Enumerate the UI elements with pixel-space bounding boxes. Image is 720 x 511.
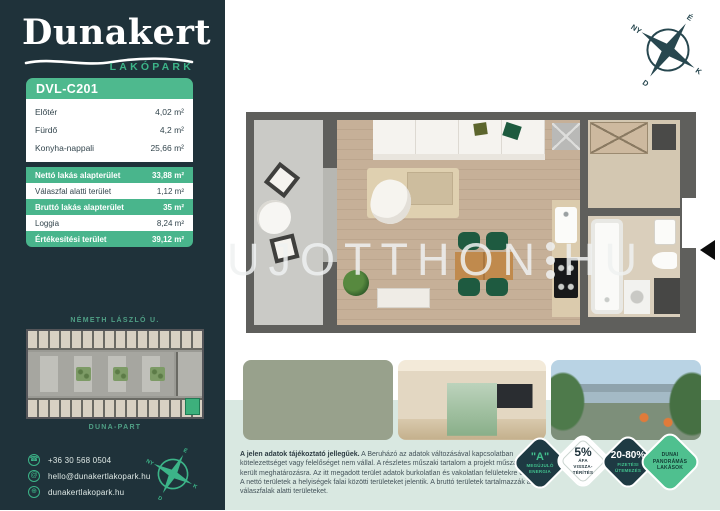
summary-table: Nettó lakás alapterület 33,88 m² Válaszf… xyxy=(26,167,193,247)
table-row: Nettó lakás alapterület 33,88 m² xyxy=(26,167,193,183)
table-row: Bruttó lakás alapterület 35 m² xyxy=(26,199,193,215)
unit-id-header: DVL-C201 xyxy=(26,78,193,99)
badge-value: 20-80% xyxy=(611,450,645,462)
table-row: Értékesítési terület 39,12 m² xyxy=(26,231,193,247)
svg-text:É: É xyxy=(182,446,189,455)
siteplan-highlighted-unit xyxy=(185,398,200,415)
table-row: Fürdő 4,2 m² xyxy=(26,121,193,139)
email-address[interactable]: hello@dunakertlakopark.hu xyxy=(48,472,151,481)
photo-terrace-view xyxy=(551,360,701,440)
siteplan-garden xyxy=(113,367,128,381)
entrance-arrow-icon xyxy=(700,240,715,260)
room-label: Fürdő xyxy=(35,125,57,135)
room-label: Konyha-nappali xyxy=(35,143,94,153)
badge-value: 5% xyxy=(574,446,591,458)
summary-area: 1,12 m² xyxy=(157,187,184,196)
phone-icon: ☎ xyxy=(28,454,40,466)
contact-email-row: @ hello@dunakertlakopark.hu xyxy=(28,468,151,484)
toilet xyxy=(652,252,677,269)
summary-area: 33,88 m² xyxy=(152,171,184,180)
siteplan-units-north xyxy=(28,331,202,350)
siteplan-overview xyxy=(26,329,204,419)
coffee-table xyxy=(407,172,453,205)
summary-area: 8,24 m² xyxy=(157,219,184,228)
siteplan-garden xyxy=(76,367,91,381)
summary-label: Bruttó lakás alapterület xyxy=(35,203,124,212)
watermark-dots-icon xyxy=(546,242,555,279)
bathroom-mat xyxy=(654,278,680,314)
globe-icon: ⊕ xyxy=(28,486,40,498)
table-row: Válaszfal alatti terület 1,12 m² xyxy=(26,183,193,199)
summary-area: 39,12 m² xyxy=(152,235,184,244)
siteplan-courtyard xyxy=(28,352,174,396)
badge-label: DUNAI PANORÁMÁS LAKÁSOK xyxy=(652,452,688,472)
contact-phone-row: ☎ +36 30 568 0504 xyxy=(28,452,151,468)
summary-label: Értékesítési terület xyxy=(35,235,107,244)
contact-website-row: ⊕ dunakertlakopark.hu xyxy=(28,484,151,500)
wall-segment xyxy=(588,208,680,216)
room-area: 4,2 m² xyxy=(160,125,184,135)
summary-label: Loggia xyxy=(35,219,59,228)
brand-logo: Dunakert xyxy=(22,12,204,53)
table-row: Loggia 8,24 m² xyxy=(26,215,193,231)
table-row: Konyha-nappali 25,66 m² xyxy=(26,139,193,157)
svg-text:NY: NY xyxy=(629,23,643,36)
svg-text:D: D xyxy=(157,495,163,502)
sofa-pillow xyxy=(473,122,488,136)
svg-text:D: D xyxy=(641,78,651,89)
wardrobe xyxy=(590,122,648,154)
floor-plan xyxy=(246,112,696,333)
watermark-text-left: UJOTTHON xyxy=(227,234,544,286)
svg-text:É: É xyxy=(685,13,694,23)
summary-label: Nettó lakás alapterület xyxy=(35,171,120,180)
compass-icon: É K D NY xyxy=(615,0,720,103)
photo-interior-living xyxy=(398,360,546,440)
wall-segment xyxy=(580,120,588,164)
room-label: Előtér xyxy=(35,107,57,117)
room-area: 4,02 m² xyxy=(155,107,184,117)
sideboard xyxy=(377,288,430,308)
badge-value: "A" xyxy=(531,451,549,463)
photo-building-exterior xyxy=(243,360,393,440)
badge-label: FIZETÉSI ÜTEMEZÉS xyxy=(613,462,643,474)
disclaimer-text: A jelen adatok tájékoztató jellegűek. A … xyxy=(240,450,558,496)
sidebar: Dunakert LAKÓPARK DVL-C201 Előtér 4,02 m… xyxy=(0,0,225,510)
phone-number[interactable]: +36 30 568 0504 xyxy=(48,456,111,465)
table-row: Előtér 4,02 m² xyxy=(26,103,193,121)
loggia-table xyxy=(257,200,291,234)
badge-label: ÁFA VISSZA- TÉRÍTÉS xyxy=(568,458,598,476)
contact-block: ☎ +36 30 568 0504 @ hello@dunakertlakopa… xyxy=(28,452,151,500)
svg-text:K: K xyxy=(694,66,704,77)
fridge xyxy=(552,123,580,150)
street-label-bottom: DUNA-PART xyxy=(26,424,204,431)
brand-subtitle: LAKÓPARK xyxy=(24,61,194,73)
siteplan-roof-slabs xyxy=(40,356,166,392)
svg-text:K: K xyxy=(192,483,198,490)
bathroom-sink xyxy=(654,219,676,245)
summary-label: Válaszfal alatti terület xyxy=(35,187,111,196)
website-url[interactable]: dunakertlakopark.hu xyxy=(48,488,124,497)
siteplan-units-south xyxy=(28,398,202,417)
siteplan-east-wing xyxy=(176,352,202,396)
email-icon: @ xyxy=(28,470,40,482)
badge-label: MEGÚJULÓ ENERGIA xyxy=(525,463,555,475)
siteplan-garden xyxy=(150,367,165,381)
disclaimer-lead: A jelen adatok tájékoztató jellegűek. xyxy=(240,451,360,458)
rooms-table: Előtér 4,02 m² Fürdő 4,2 m² Konyha-nappa… xyxy=(26,99,193,162)
wall-segment xyxy=(323,120,337,168)
street-label-top: NÉMETH LÁSZLÓ U. xyxy=(26,317,204,324)
entrance-door-opening xyxy=(682,198,696,248)
watermark-text-right: HU xyxy=(563,234,646,286)
summary-area: 35 m² xyxy=(163,203,184,212)
room-area: 25,66 m² xyxy=(150,143,184,153)
entry-mat xyxy=(652,124,676,150)
watermark: UJOTTHON HU xyxy=(227,234,646,286)
